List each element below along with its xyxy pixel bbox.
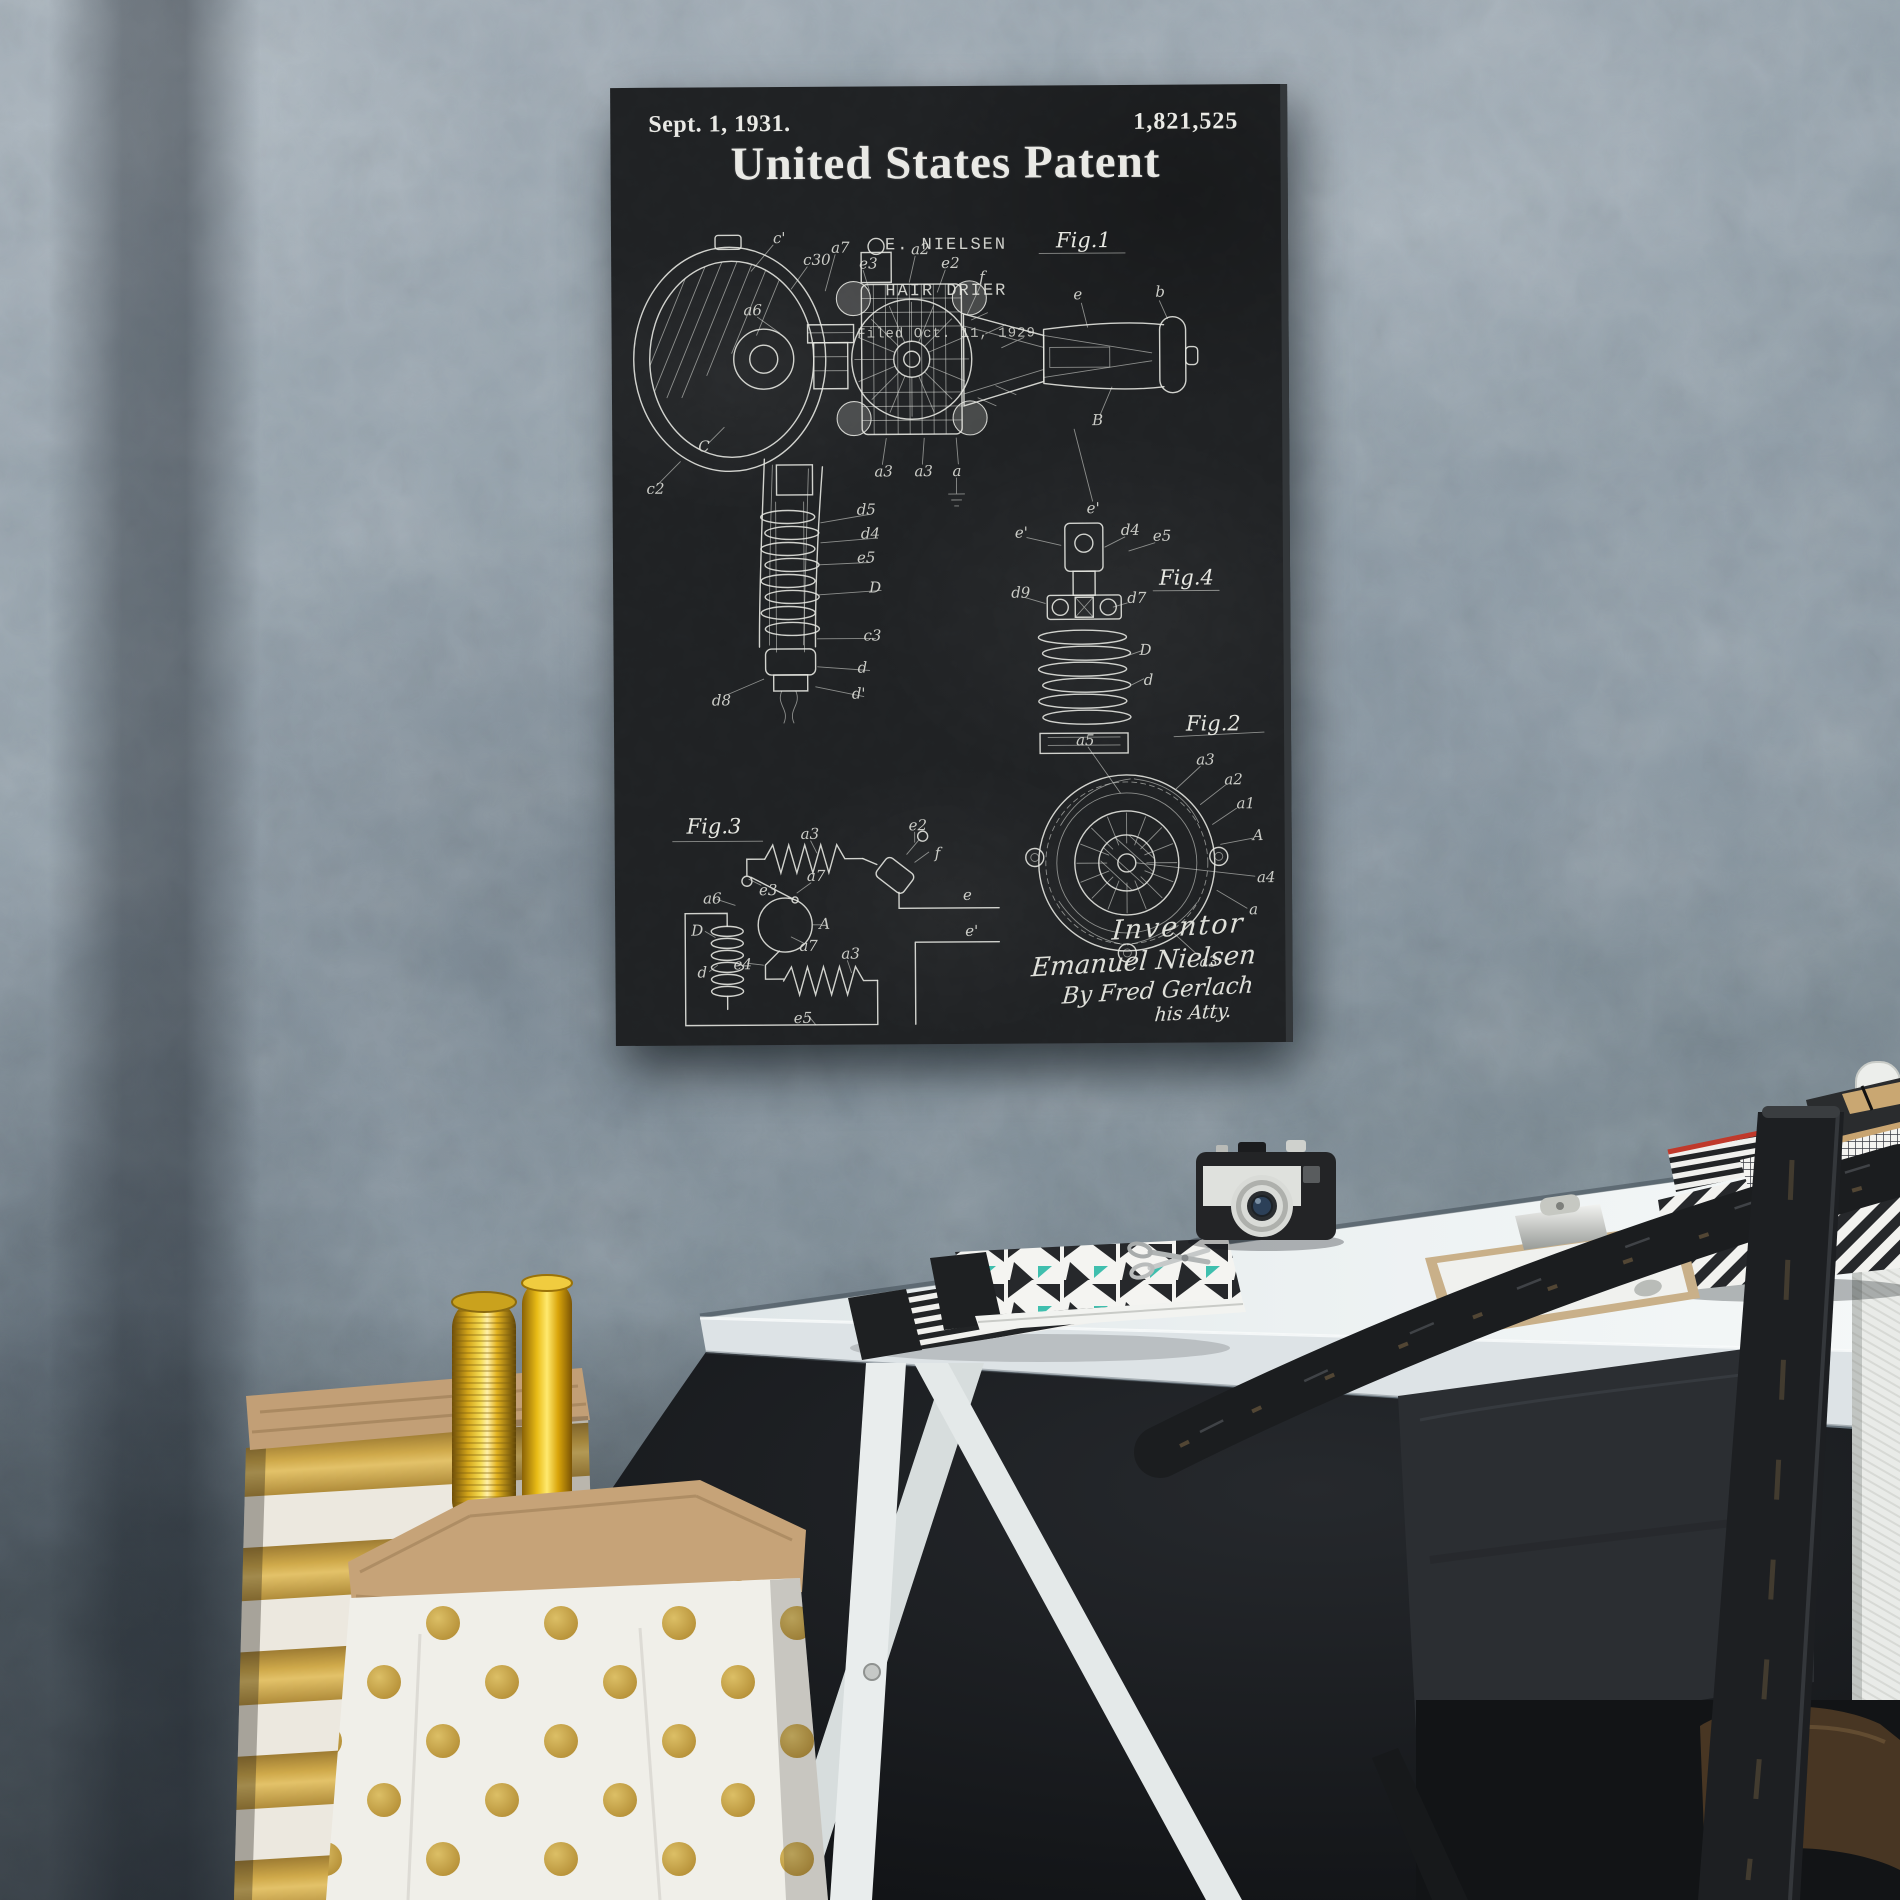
polka-bag-body	[326, 1578, 828, 1900]
desk-scene	[0, 0, 1900, 1900]
camera-shutter-button	[1286, 1140, 1306, 1152]
camera-window	[1303, 1166, 1320, 1183]
ribbed-gold-wrap-roll	[452, 1292, 516, 1530]
camera-lens	[1231, 1175, 1293, 1237]
vintage-camera	[1188, 1140, 1344, 1251]
trestle-bolt	[864, 1664, 880, 1680]
room-photo: Sept. 1, 1931. 1,821,525 United States P…	[0, 0, 1900, 1900]
